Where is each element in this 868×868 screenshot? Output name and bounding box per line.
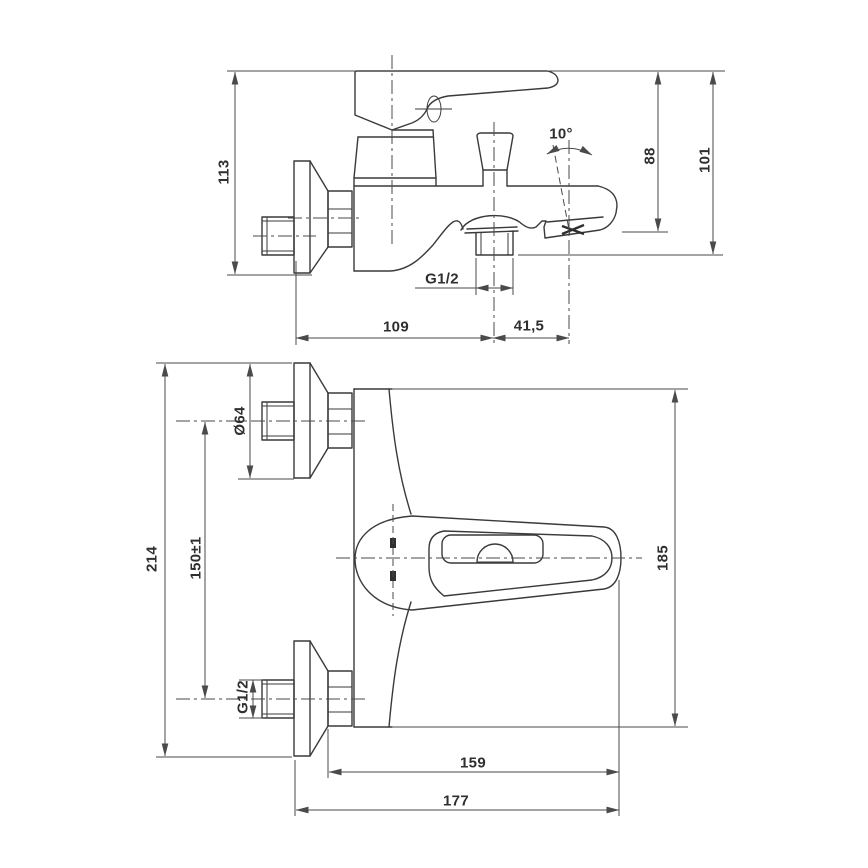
dim-label-shower-thread-g12: G1/2: [425, 271, 459, 288]
dim-label-overall-height-113: 113: [216, 159, 233, 184]
technical-drawing-page: 113 88 101 10° G1/2 109 41,5 214 150±1 Ø…: [0, 0, 868, 868]
dim-label-connection-spacing-150: 150±1: [188, 536, 205, 579]
dim-label-inlet-thread-g12: G1/2: [235, 680, 252, 714]
side-view-dimensions: [227, 55, 725, 345]
dim-label-flange-diameter-64: Ø64: [232, 406, 249, 435]
dim-label-nut-to-handle-159: 159: [460, 755, 486, 772]
dim-label-wall-to-outlet-109: 109: [383, 319, 409, 336]
dim-label-spout-height-88: 88: [642, 147, 659, 164]
dim-label-overall-span-214: 214: [144, 546, 161, 572]
dim-label-total-height-101: 101: [697, 147, 714, 173]
dim-label-body-span-185: 185: [655, 545, 672, 571]
faucet-technical-drawing: [0, 0, 868, 868]
side-view-body: [262, 71, 617, 273]
dim-label-outlet-to-tip-41-5: 41,5: [514, 318, 544, 335]
dim-label-wall-to-handle-177: 177: [443, 793, 469, 810]
dim-label-spout-angle-10: 10°: [549, 126, 573, 143]
plan-view-body: [262, 363, 621, 756]
